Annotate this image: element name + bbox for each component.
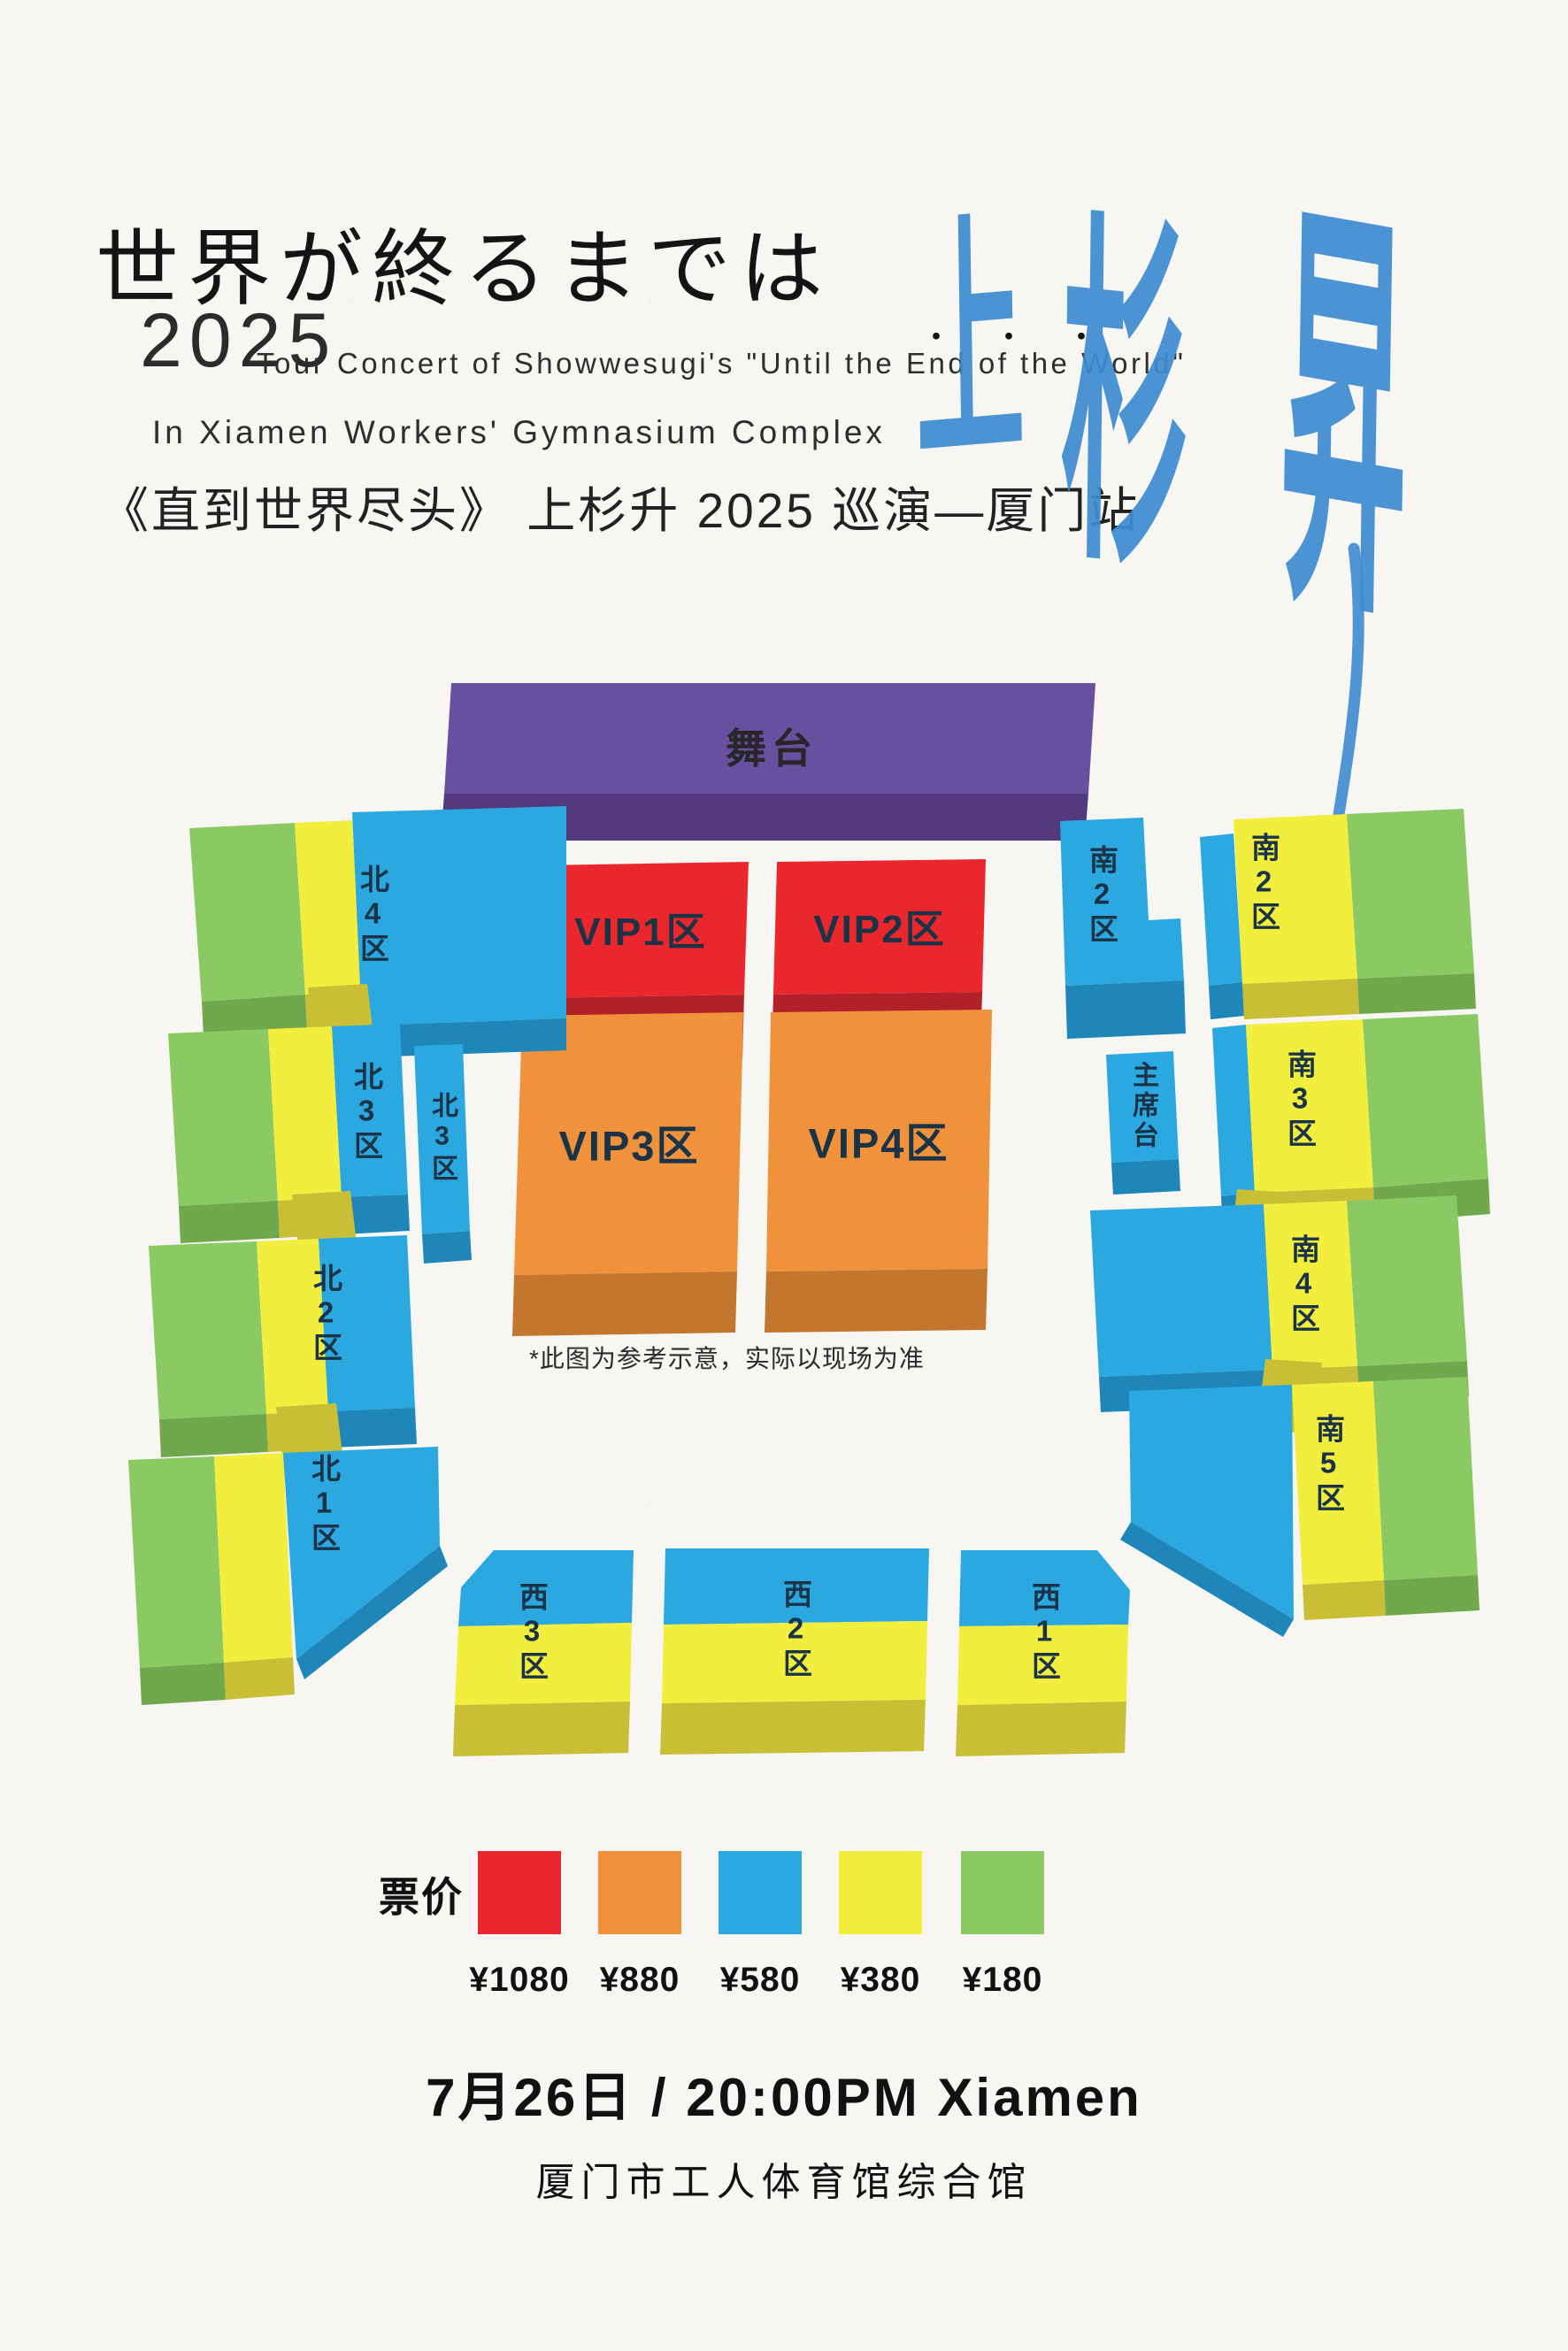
south-row-2 bbox=[1200, 809, 1476, 1019]
south2-yellow-front bbox=[1242, 979, 1359, 1019]
south2-inner-label: 南2区 bbox=[1088, 845, 1117, 947]
event-venue: 厦门市工人体育馆综合馆 bbox=[0, 2150, 1568, 2207]
legend-swatch-orange bbox=[598, 1851, 681, 1934]
south5-yellow-front bbox=[1303, 1580, 1386, 1620]
south4-blue-block bbox=[1090, 1204, 1272, 1377]
legend-price: ¥180 bbox=[932, 1961, 1073, 2000]
vip3-front-face bbox=[512, 1272, 737, 1336]
legend-swatch-green bbox=[961, 1851, 1044, 1934]
west3-label: 西3区 bbox=[518, 1582, 547, 1684]
north4-green-band bbox=[189, 823, 305, 1002]
vip4-block bbox=[765, 1010, 992, 1333]
legend-swatch-red bbox=[478, 1851, 561, 1934]
south5-label: 南5区 bbox=[1314, 1414, 1343, 1516]
north2-green-front bbox=[159, 1414, 268, 1457]
event-datetime: 7月26日 / 20:00PM Xiamen bbox=[0, 2055, 1568, 2132]
north3-label-a: 北3区 bbox=[352, 1062, 381, 1164]
south2-inner-block bbox=[1060, 818, 1186, 1039]
west1-label: 西1区 bbox=[1030, 1582, 1059, 1684]
legend-price: ¥380 bbox=[810, 1961, 951, 2000]
south3-label: 南3区 bbox=[1286, 1049, 1315, 1151]
south2-green-front bbox=[1357, 973, 1476, 1014]
vip4-front-face bbox=[765, 1269, 988, 1333]
vip2-label: VIP2区 bbox=[813, 897, 945, 954]
reference-note: *此图为参考示意，实际以现场为准 bbox=[529, 1340, 925, 1375]
legend-item-380: ¥380 bbox=[839, 1851, 922, 2000]
south2-blue-front bbox=[1209, 982, 1244, 1019]
legend-title: 票价 bbox=[379, 1865, 464, 1924]
vip3-label: VIP3区 bbox=[559, 1112, 700, 1173]
legend-item-580: ¥580 bbox=[719, 1851, 802, 2000]
north3-green-front bbox=[179, 1201, 280, 1243]
north3-yellow-band bbox=[268, 1026, 342, 1201]
south2-inner-top-face bbox=[1060, 818, 1184, 986]
legend-item-880: ¥880 bbox=[598, 1851, 681, 2000]
south2-label: 南2区 bbox=[1249, 833, 1279, 934]
north2-label: 北2区 bbox=[311, 1264, 341, 1365]
north1-yellow-band bbox=[214, 1453, 293, 1663]
north2-green-band bbox=[149, 1241, 266, 1419]
north1-yellow-front bbox=[224, 1657, 295, 1700]
concert-poster: 世界が終るまでは ・・・ 2025 Tour Concert of Showwe… bbox=[0, 0, 1568, 2351]
vip3-block bbox=[512, 1012, 743, 1336]
south3-green-band bbox=[1363, 1014, 1488, 1187]
west3-front-face bbox=[453, 1702, 630, 1756]
south2-inner-front-face bbox=[1065, 980, 1186, 1039]
south4-label: 南4区 bbox=[1289, 1234, 1318, 1336]
legend-swatch-yellow bbox=[839, 1851, 922, 1934]
north-row-1 bbox=[128, 1447, 448, 1705]
south2-green-band bbox=[1347, 809, 1474, 979]
podium-front-face bbox=[1111, 1159, 1180, 1195]
south5-green-band bbox=[1373, 1377, 1478, 1580]
south-row-5 bbox=[1120, 1377, 1480, 1637]
vip4-label: VIP4区 bbox=[809, 1110, 949, 1171]
legend-item-1080: ¥1080 bbox=[478, 1851, 561, 2000]
north1-green-front bbox=[140, 1663, 226, 1705]
north3-label-b: 北3区 bbox=[428, 1092, 455, 1185]
stage-label: 舞台 bbox=[726, 717, 818, 775]
north4-yellow-band bbox=[295, 820, 362, 995]
north1-label: 北1区 bbox=[310, 1454, 339, 1556]
south5-green-front bbox=[1384, 1575, 1480, 1616]
north3-green-band bbox=[168, 1029, 278, 1206]
west2-label: 西2区 bbox=[781, 1579, 811, 1681]
podium-label: 主席台 bbox=[1129, 1061, 1156, 1151]
north4-label: 北4区 bbox=[358, 864, 388, 966]
west1-front-face bbox=[956, 1702, 1126, 1756]
south4-green-band bbox=[1347, 1195, 1467, 1366]
north2-blue-front bbox=[328, 1408, 417, 1448]
north1-green-band bbox=[128, 1456, 224, 1668]
vip1-label: VIP1区 bbox=[574, 900, 706, 957]
west2-front-face bbox=[660, 1700, 926, 1755]
legend-swatch-blue bbox=[719, 1851, 802, 1934]
legend-item-180: ¥180 bbox=[961, 1851, 1044, 2000]
north3-inner-blue-front bbox=[422, 1231, 472, 1264]
